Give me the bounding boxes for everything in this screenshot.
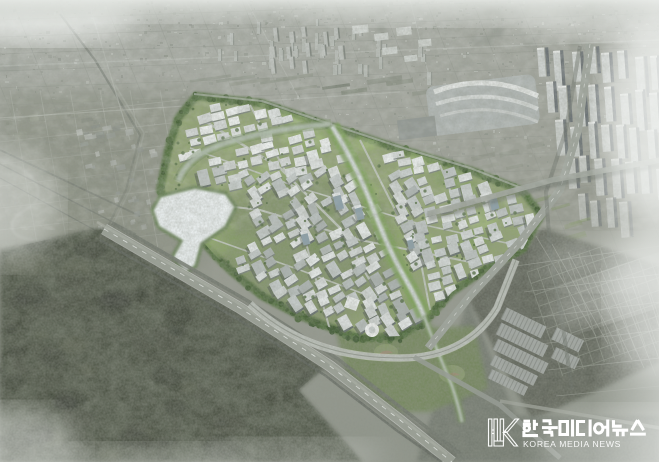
svg-text:KOREA MEDIA NEWS: KOREA MEDIA NEWS	[523, 439, 621, 449]
